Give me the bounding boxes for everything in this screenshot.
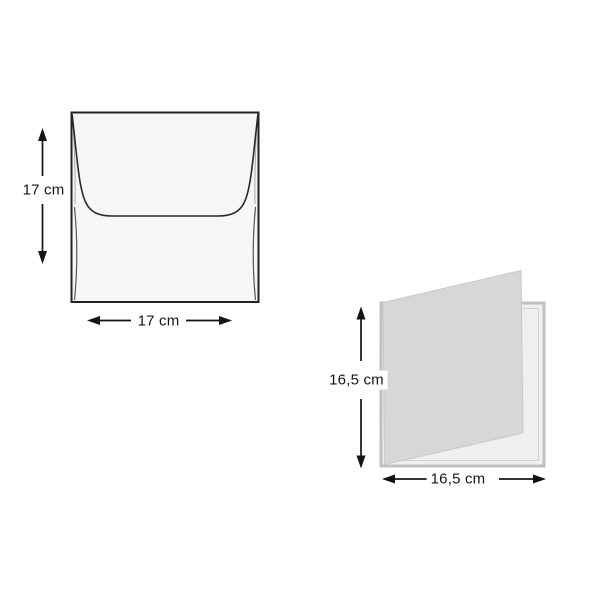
envelope-body bbox=[72, 113, 259, 303]
card-width-label: 16,5 cm bbox=[427, 469, 490, 488]
arrow-right-icon bbox=[533, 475, 546, 484]
dimension-diagram: 17 cm 17 cm 16,5 cm 16,5 cm bbox=[0, 0, 600, 600]
envelope-width-label: 17 cm bbox=[134, 311, 184, 330]
arrow-down-icon bbox=[357, 456, 366, 469]
arrow-right-icon bbox=[219, 316, 232, 325]
card-front-cover bbox=[383, 271, 523, 465]
arrow-down-icon bbox=[38, 251, 47, 264]
diagram-svg bbox=[0, 0, 600, 600]
envelope-height-label: 17 cm bbox=[19, 180, 69, 199]
envelope-figure bbox=[38, 113, 259, 326]
card-height-label: 16,5 cm bbox=[325, 371, 388, 390]
